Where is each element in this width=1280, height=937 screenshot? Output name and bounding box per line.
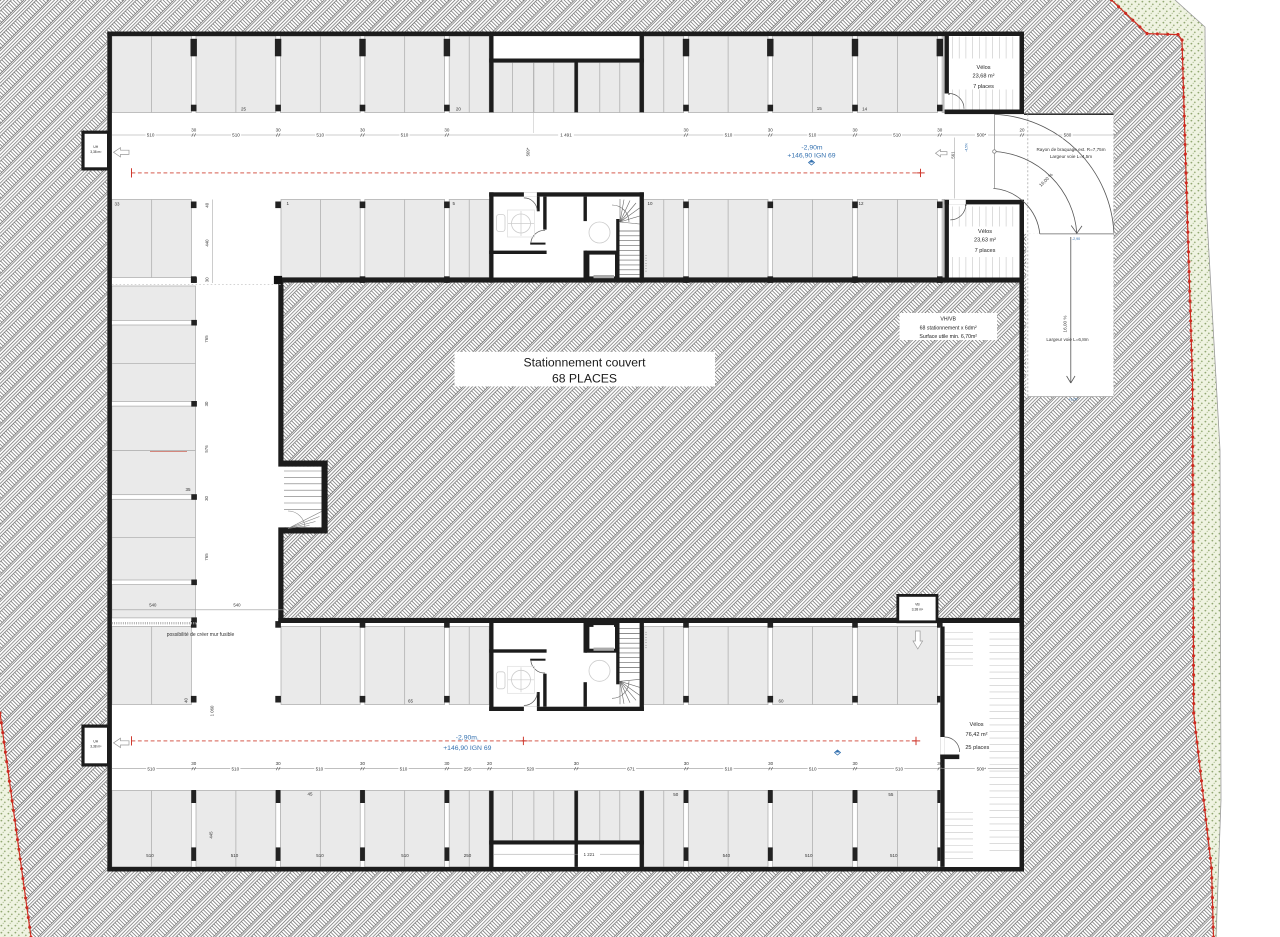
svg-text:30: 30 bbox=[684, 761, 690, 766]
svg-text:520: 520 bbox=[527, 766, 535, 771]
svg-text:510: 510 bbox=[231, 853, 239, 858]
svg-text:580: 580 bbox=[1064, 133, 1072, 138]
svg-text:33: 33 bbox=[115, 202, 121, 207]
svg-text:30: 30 bbox=[276, 127, 282, 132]
svg-text:-2,90: -2,90 bbox=[1072, 237, 1080, 241]
svg-text:510: 510 bbox=[147, 133, 155, 138]
svg-text:500*: 500* bbox=[977, 133, 987, 138]
svg-text:23,63 m²: 23,63 m² bbox=[974, 238, 996, 244]
svg-text:30: 30 bbox=[852, 761, 858, 766]
svg-text:Vélos: Vélos bbox=[978, 229, 992, 235]
svg-text:510: 510 bbox=[895, 766, 903, 771]
svg-text:510: 510 bbox=[147, 766, 155, 771]
svg-text:55: 55 bbox=[888, 792, 894, 797]
svg-text:60: 60 bbox=[778, 699, 784, 704]
svg-text:30: 30 bbox=[852, 127, 858, 132]
svg-text:440: 440 bbox=[204, 239, 209, 247]
svg-text:250: 250 bbox=[464, 853, 472, 858]
svg-text:3,38 m²: 3,38 m² bbox=[90, 150, 102, 154]
svg-text:30: 30 bbox=[204, 496, 209, 501]
svg-text:Surface utile min. 6,70m²: Surface utile min. 6,70m² bbox=[919, 334, 977, 340]
svg-text:Rayon de braquage ext. R=7,75m: Rayon de braquage ext. R=7,75m bbox=[1036, 147, 1105, 152]
svg-text:510: 510 bbox=[725, 133, 733, 138]
svg-text:30: 30 bbox=[360, 761, 366, 766]
svg-text:76,42 m²: 76,42 m² bbox=[965, 732, 987, 738]
svg-text:23,68 m²: 23,68 m² bbox=[972, 74, 994, 80]
svg-text:510: 510 bbox=[893, 133, 901, 138]
svg-text:30: 30 bbox=[937, 761, 943, 766]
svg-text:510: 510 bbox=[725, 766, 733, 771]
svg-text:30: 30 bbox=[768, 127, 774, 132]
svg-text:3,38 m²: 3,38 m² bbox=[912, 608, 924, 612]
svg-text:250: 250 bbox=[464, 766, 472, 771]
svg-text:30: 30 bbox=[204, 277, 209, 282]
svg-text:1 221: 1 221 bbox=[584, 852, 595, 857]
svg-text:25: 25 bbox=[241, 106, 247, 111]
svg-text:30: 30 bbox=[191, 761, 197, 766]
svg-text:45: 45 bbox=[307, 792, 313, 797]
svg-text:510: 510 bbox=[316, 853, 324, 858]
svg-text:1 060: 1 060 bbox=[209, 705, 214, 716]
svg-text:40: 40 bbox=[204, 202, 209, 207]
svg-text:20: 20 bbox=[487, 761, 493, 766]
svg-text:30: 30 bbox=[276, 761, 282, 766]
svg-text:-2,90m.: -2,90m. bbox=[456, 735, 479, 742]
svg-text:68 PLACES: 68 PLACES bbox=[552, 372, 617, 386]
svg-text:Largeur voie L=6,8m: Largeur voie L=6,8m bbox=[1046, 337, 1088, 342]
svg-text:16,00 %: 16,00 % bbox=[1062, 316, 1067, 333]
svg-text:+146,90 IGN 69: +146,90 IGN 69 bbox=[443, 745, 491, 752]
svg-text:25 places: 25 places bbox=[965, 745, 989, 751]
svg-text:765: 765 bbox=[204, 335, 209, 343]
svg-text:Stationnement couvert: Stationnement couvert bbox=[524, 356, 647, 370]
svg-text:500*: 500* bbox=[977, 766, 987, 771]
svg-text:445: 445 bbox=[209, 831, 214, 839]
svg-text:510: 510 bbox=[809, 766, 817, 771]
svg-text:Vélos: Vélos bbox=[970, 722, 984, 728]
svg-text:540: 540 bbox=[149, 603, 157, 608]
svg-text:510: 510 bbox=[401, 133, 409, 138]
svg-text:509*: 509* bbox=[526, 147, 531, 156]
svg-text:-2,90m: -2,90m bbox=[801, 144, 822, 151]
svg-text:+146,90 IGN 69: +146,90 IGN 69 bbox=[787, 152, 835, 159]
svg-text:14: 14 bbox=[862, 106, 868, 111]
svg-text:3,38 m²: 3,38 m² bbox=[90, 745, 102, 749]
svg-text:20: 20 bbox=[1019, 127, 1025, 132]
svg-text:510: 510 bbox=[146, 853, 154, 858]
svg-text:7 places: 7 places bbox=[975, 248, 996, 254]
svg-text:15: 15 bbox=[817, 106, 823, 111]
svg-text:30: 30 bbox=[683, 127, 689, 132]
svg-text:510: 510 bbox=[809, 133, 817, 138]
svg-text:30: 30 bbox=[574, 761, 580, 766]
svg-text:540: 540 bbox=[723, 853, 731, 858]
svg-text:30: 30 bbox=[191, 127, 197, 132]
svg-text:30: 30 bbox=[768, 761, 774, 766]
svg-text:Vélos: Vélos bbox=[977, 65, 991, 71]
svg-text:510: 510 bbox=[316, 766, 324, 771]
svg-text:30: 30 bbox=[204, 401, 209, 406]
svg-text:12: 12 bbox=[859, 201, 865, 206]
svg-text:765: 765 bbox=[204, 553, 209, 561]
svg-text:UH: UH bbox=[93, 740, 98, 744]
svg-text:1 491: 1 491 bbox=[560, 133, 572, 138]
svg-text:510: 510 bbox=[890, 853, 898, 858]
svg-text:30: 30 bbox=[937, 127, 943, 132]
svg-text:671: 671 bbox=[627, 766, 635, 771]
svg-text:510: 510 bbox=[400, 766, 408, 771]
svg-text:30: 30 bbox=[360, 127, 366, 132]
svg-text:VH/VB: VH/VB bbox=[940, 317, 956, 323]
svg-text:65: 65 bbox=[408, 699, 414, 704]
svg-text:510: 510 bbox=[316, 133, 324, 138]
svg-text:20: 20 bbox=[456, 106, 462, 111]
svg-text:50: 50 bbox=[673, 792, 679, 797]
svg-text:510: 510 bbox=[805, 853, 813, 858]
svg-text:UH: UH bbox=[93, 145, 98, 149]
svg-text:35: 35 bbox=[185, 487, 191, 492]
svg-text:510: 510 bbox=[232, 133, 240, 138]
svg-text:540: 540 bbox=[233, 603, 241, 608]
svg-text:VB: VB bbox=[915, 603, 920, 607]
svg-text:40: 40 bbox=[184, 698, 189, 703]
svg-text:30: 30 bbox=[444, 127, 450, 132]
svg-text:576: 576 bbox=[204, 445, 209, 453]
svg-text:+1,07: +1,07 bbox=[1068, 398, 1077, 402]
svg-text:7 places: 7 places bbox=[973, 84, 994, 90]
svg-text:510: 510 bbox=[401, 853, 409, 858]
svg-text:10: 10 bbox=[648, 201, 654, 206]
svg-text:30: 30 bbox=[444, 761, 450, 766]
svg-text:68 stationnement x 6dm²: 68 stationnement x 6dm² bbox=[920, 326, 977, 332]
svg-text:possibilité de créer mur fusib: possibilité de créer mur fusible bbox=[167, 632, 235, 638]
svg-text:510: 510 bbox=[231, 766, 239, 771]
svg-text:-4,5%: -4,5% bbox=[965, 143, 969, 152]
svg-text:Largeur voie L=4,5m: Largeur voie L=4,5m bbox=[1050, 154, 1092, 159]
